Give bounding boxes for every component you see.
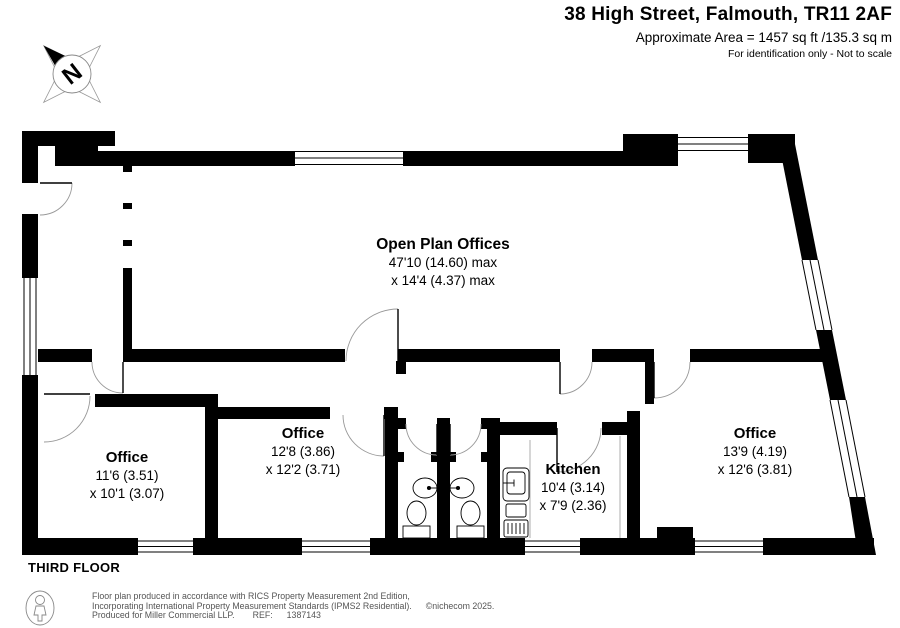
door-arc	[44, 396, 90, 442]
wash-basin	[413, 478, 437, 498]
wall	[123, 240, 132, 246]
room-name: Office	[282, 425, 325, 442]
door-arc	[406, 424, 437, 455]
wall	[22, 538, 138, 555]
wall	[627, 411, 640, 538]
window	[830, 400, 865, 497]
wall	[193, 538, 302, 555]
door-arc	[40, 183, 72, 215]
toilet	[457, 501, 484, 538]
room-dim: 47'10 (14.60) max	[389, 255, 498, 270]
door-arc	[654, 362, 690, 398]
room-dim: 11'6 (3.51)	[95, 468, 158, 483]
footer-ref-label: REF:	[253, 610, 273, 620]
wall	[98, 151, 295, 166]
room-dim: 13'9 (4.19)	[723, 444, 787, 459]
wall	[398, 452, 404, 462]
wall	[123, 203, 132, 209]
window	[695, 541, 763, 552]
window	[302, 541, 370, 552]
wall	[592, 349, 654, 362]
wall	[487, 418, 500, 538]
toilet	[403, 501, 430, 538]
footer-line3: Produced for Miller Commercial LLP.	[92, 610, 235, 620]
wall	[396, 361, 406, 374]
room-dim: 10'4 (3.14)	[541, 480, 605, 495]
wall	[385, 418, 398, 538]
compass-rose: N	[44, 46, 101, 103]
room-label-office-middle: Office 12'8 (3.86) x 12'2 (3.71)	[266, 425, 341, 477]
door-arc	[450, 424, 481, 455]
wall	[384, 407, 398, 419]
door-arc	[346, 309, 398, 361]
floor-label: THIRD FLOOR	[28, 560, 120, 575]
footer-line1: Floor plan produced in accordance with R…	[92, 591, 410, 601]
wall	[123, 349, 345, 362]
window	[678, 138, 748, 151]
wall	[22, 375, 38, 538]
doors	[40, 183, 690, 472]
window	[138, 541, 193, 552]
wall	[205, 394, 218, 538]
kitchen-sink	[503, 468, 529, 537]
wall	[580, 538, 695, 555]
wall	[38, 349, 92, 362]
room-name: Office	[106, 449, 149, 466]
door-arc	[343, 415, 384, 456]
room-label-office-left: Office 11'6 (3.51) x 10'1 (3.07)	[90, 449, 165, 501]
wall	[481, 452, 487, 462]
approximate-area: Approximate Area = 1457 sq ft /135.3 sq …	[564, 30, 892, 45]
wall	[645, 361, 654, 404]
wall-step	[657, 527, 693, 540]
wall	[398, 349, 560, 362]
wall	[481, 418, 487, 429]
wall	[816, 330, 846, 400]
wall	[123, 268, 132, 362]
wall	[95, 394, 205, 407]
wall	[123, 165, 132, 172]
disclaimer: For identification only - Not to scale	[564, 48, 892, 60]
room-name: Office	[734, 425, 777, 442]
window	[295, 152, 403, 165]
wall	[623, 134, 678, 166]
room-label-open-plan: Open Plan Offices 47'10 (14.60) max x 14…	[376, 236, 510, 288]
person-icon	[14, 588, 74, 628]
wall	[431, 452, 437, 462]
room-label-kitchen: Kitchen 10'4 (3.14) x 7'9 (2.36)	[539, 461, 606, 513]
wall	[450, 452, 456, 462]
footer-ref-value: 1387143	[287, 610, 321, 620]
floorplan-page: 38 High Street, Falmouth, TR11 2AF Appro…	[0, 0, 900, 628]
door-leaves	[40, 183, 654, 472]
footer-text: Floor plan produced in accordance with R…	[92, 592, 494, 621]
wall	[690, 349, 823, 362]
wall	[778, 134, 818, 260]
wall	[403, 151, 623, 166]
footer-copyright: ©nichecom 2025.	[426, 601, 495, 611]
wall	[218, 407, 330, 419]
door-arc	[92, 362, 123, 393]
door-arcs	[40, 183, 690, 472]
wall	[398, 418, 406, 429]
room-dim: x 10'1 (3.07)	[90, 486, 165, 501]
room-label-office-right: Office 13'9 (4.19) x 12'6 (3.81)	[718, 425, 793, 477]
wall	[55, 146, 98, 166]
room-name: Kitchen	[545, 461, 600, 478]
window	[24, 278, 36, 375]
room-dim: 12'8 (3.86)	[271, 444, 335, 459]
wall	[26, 131, 115, 146]
room-dim: x 12'6 (3.81)	[718, 462, 793, 477]
wall	[500, 422, 557, 435]
room-dim: x 7'9 (2.36)	[539, 498, 606, 513]
wash-basin	[450, 478, 474, 498]
room-dim: x 14'4 (4.37) max	[391, 273, 495, 288]
page-title: 38 High Street, Falmouth, TR11 2AF	[564, 4, 892, 26]
wall	[763, 538, 874, 555]
door-arc	[560, 362, 592, 394]
window	[525, 541, 580, 552]
room-name: Open Plan Offices	[376, 236, 510, 253]
room-dim: x 12'2 (3.71)	[266, 462, 341, 477]
wall	[437, 418, 450, 538]
footer-line2: Incorporating International Property Mea…	[92, 601, 412, 611]
wall	[22, 131, 38, 183]
window	[802, 260, 832, 330]
wall	[22, 214, 38, 278]
floor-plan-canvas: N	[0, 0, 900, 628]
header: 38 High Street, Falmouth, TR11 2AF Appro…	[564, 4, 892, 60]
wall	[370, 538, 525, 555]
